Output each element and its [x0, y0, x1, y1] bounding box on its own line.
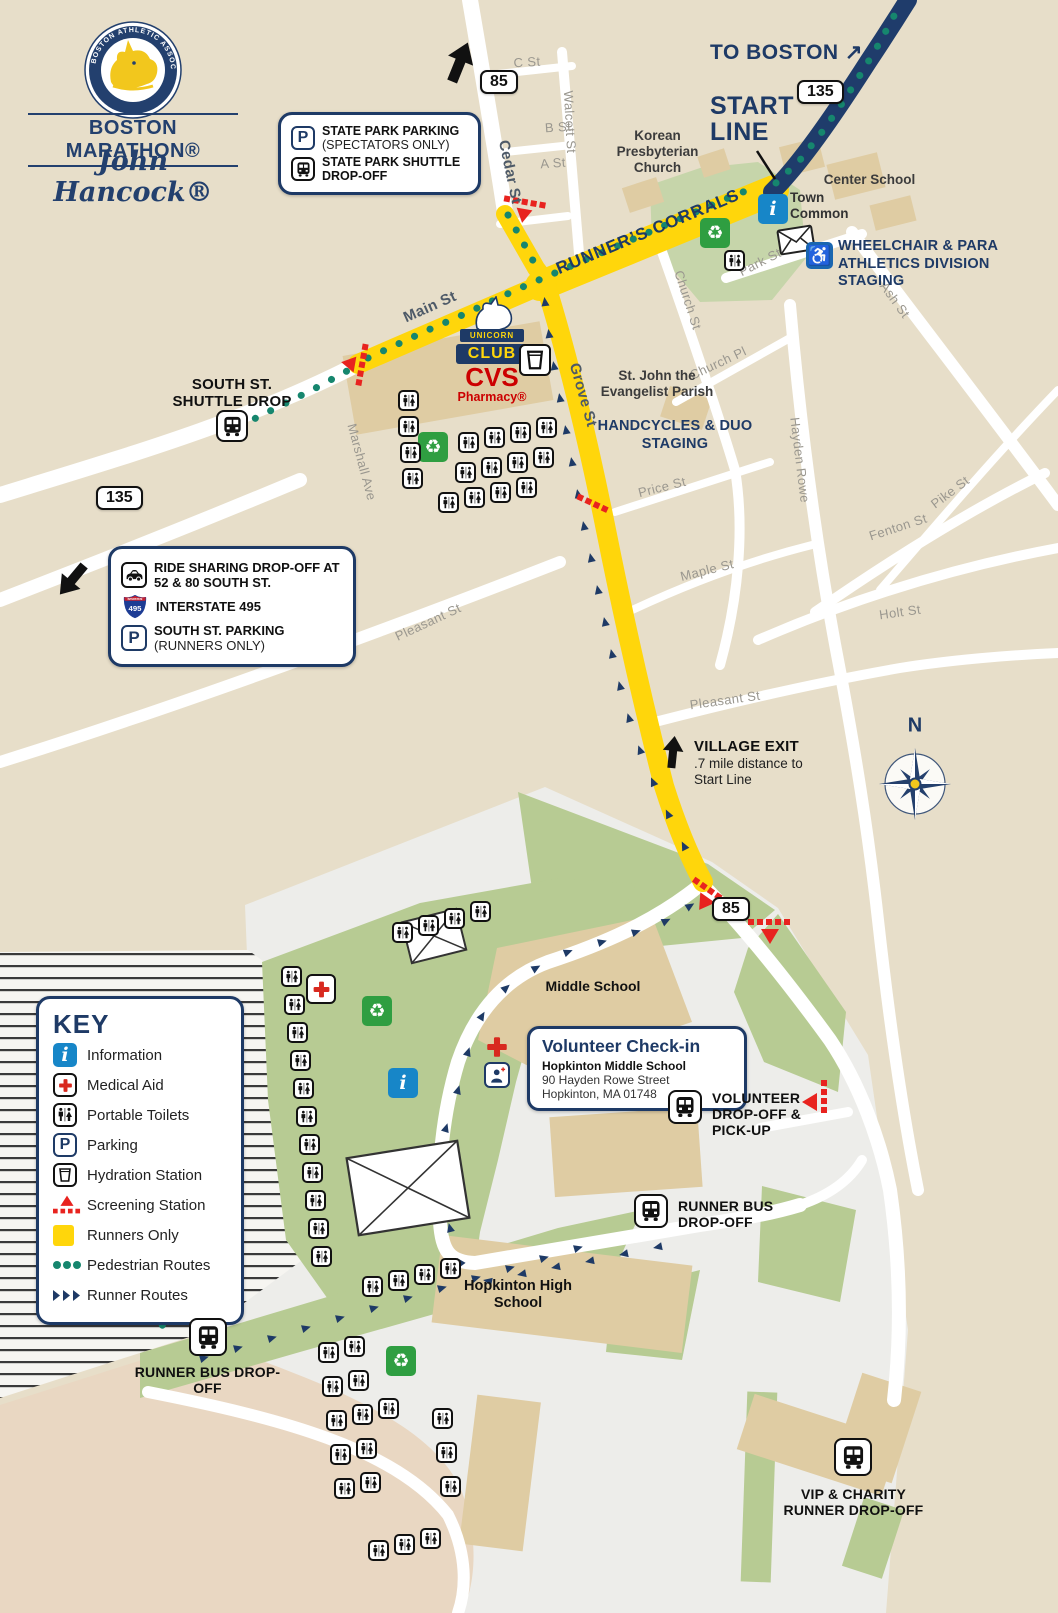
recycle-icon: ♻ — [386, 1346, 416, 1376]
volunteer-icon — [484, 1062, 510, 1088]
bus-icon — [668, 1090, 702, 1124]
key-title: KEY — [53, 1009, 227, 1040]
south-st-parking-label: SOUTH ST. PARKING — [154, 623, 285, 638]
portable-toilets-icon — [356, 1438, 377, 1459]
recycle-icon: ♻ — [700, 218, 730, 248]
portable-toilets-icon — [281, 966, 302, 987]
portable-toilets-icon — [308, 1218, 329, 1239]
key-item-information: Information — [87, 1047, 227, 1064]
interstate-495-shield: INTERSTATE 495 — [121, 593, 149, 620]
state-park-parking-label: STATE PARK PARKING — [322, 124, 459, 138]
hydration-icon — [519, 344, 551, 376]
portable-toilets-icon — [299, 1134, 320, 1155]
state-park-parking-sub: (SPECTATORS ONLY) — [322, 138, 459, 152]
portable-toilets-icon — [481, 457, 502, 478]
recycle-icon: ♻ — [418, 432, 448, 462]
key-item-medical: Medical Aid — [87, 1077, 227, 1094]
hopkinton-start-area-map: BOSTON ATHLETIC ASSOCIATION BOSTON MARAT… — [0, 0, 1058, 1613]
hydration-icon — [53, 1163, 77, 1187]
label-handcycles-staging: HANDCYCLES & DUO STAGING — [595, 418, 755, 453]
south-st-parking-sub: (RUNNERS ONLY) — [154, 638, 285, 653]
unicorn-club-top: UNICORN — [460, 329, 524, 342]
portable-toilets-icon — [438, 492, 459, 513]
portable-toilets-icon — [533, 447, 554, 468]
portable-toilets-icon — [284, 994, 305, 1015]
place-middle-school: Middle School — [538, 978, 648, 995]
portable-toilets-icon — [305, 1190, 326, 1211]
portable-toilets-icon — [290, 1050, 311, 1071]
portable-toilets-icon — [398, 416, 419, 437]
portable-toilets-icon — [398, 390, 419, 411]
ride-share-callout: RIDE SHARING DROP-OFF AT 52 & 80 SOUTH S… — [108, 546, 356, 667]
bus-icon — [634, 1194, 668, 1228]
portable-toilets-icon — [311, 1246, 332, 1267]
unicorn-head-icon — [469, 296, 515, 332]
portable-toilets-icon — [470, 901, 491, 922]
portable-toilets-icon — [318, 1342, 339, 1363]
place-high-school: Hopkinton High School — [438, 1278, 598, 1312]
route-85-shield-south: 85 — [712, 897, 750, 921]
label-to-boston: TO BOSTON ↗ — [710, 40, 863, 65]
portable-toilets-icon — [516, 477, 537, 498]
portable-toilets-icon — [414, 1264, 435, 1285]
label-wheelchair-staging: WHEELCHAIR & PARA ATHLETICS DIVISION STA… — [838, 238, 1048, 291]
runners-only-swatch — [53, 1225, 74, 1246]
info-icon: i — [758, 194, 788, 224]
portable-toilets-icon — [400, 442, 421, 463]
portable-toilets-icon — [322, 1376, 343, 1397]
portable-toilets-icon — [362, 1276, 383, 1297]
portable-toilets-icon — [432, 1408, 453, 1429]
portable-toilets-icon — [484, 427, 505, 448]
place-st-john: St. John the Evangelist Parish — [592, 368, 722, 400]
portable-toilets-icon — [53, 1103, 77, 1127]
portable-toilets-icon — [378, 1398, 399, 1419]
portable-toilets-icon — [296, 1106, 317, 1127]
portable-toilets-icon — [440, 1258, 461, 1279]
key-item-hydration: Hydration Station — [87, 1167, 227, 1184]
runner-route-icon — [53, 1290, 81, 1301]
portable-toilets-icon — [334, 1478, 355, 1499]
pedestrian-route-icon — [53, 1260, 81, 1270]
ride-share-label: RIDE SHARING DROP-OFF AT 52 & 80 SOUTH S… — [154, 560, 343, 590]
place-town-common: Town Common — [790, 190, 865, 222]
portable-toilets-icon — [344, 1336, 365, 1357]
portable-toilets-icon — [490, 482, 511, 503]
wheelchair-icon: ♿ — [806, 242, 833, 269]
key-item-runners-only: Runners Only — [87, 1227, 227, 1244]
bus-icon — [834, 1438, 872, 1476]
info-icon: i — [53, 1043, 77, 1067]
place-korean-church: Korean Presbyterian Church — [600, 128, 715, 176]
state-park-callout: P STATE PARK PARKING (SPECTATORS ONLY) S… — [278, 112, 481, 195]
state-park-shuttle-label: STATE PARK SHUTTLE DROP-OFF — [322, 155, 468, 183]
label-vip-charity-dropoff: VIP & CHARITY RUNNER DROP-OFF — [776, 1486, 931, 1518]
volunteer-checkin-title: Volunteer Check-in — [542, 1036, 732, 1057]
tent — [347, 1141, 470, 1236]
place-center-school: Center School — [822, 172, 917, 188]
parking-icon: P — [121, 625, 147, 651]
portable-toilets-icon — [287, 1022, 308, 1043]
portable-toilets-icon — [330, 1444, 351, 1465]
portable-toilets-icon — [360, 1472, 381, 1493]
interstate-495-label: INTERSTATE 495 — [156, 599, 261, 614]
compass-rose — [879, 748, 951, 820]
street-label-walcott: Walcott St — [561, 90, 579, 153]
label-south-st-shuttle: SOUTH ST. SHUTTLE DROP — [162, 376, 302, 411]
medical-aid-icon — [484, 1034, 510, 1060]
portable-toilets-icon — [510, 422, 531, 443]
compass-north-label: N — [908, 715, 922, 738]
portable-toilets-icon — [458, 432, 479, 453]
bus-icon — [216, 410, 248, 442]
unicorn-club-bottom: CLUB — [456, 344, 528, 364]
label-start-line: START LINE — [710, 94, 810, 145]
key-item-pedestrian: Pedestrian Routes — [87, 1257, 227, 1274]
route-135-shield-west: 135 — [96, 486, 143, 510]
portable-toilets-icon — [444, 908, 465, 929]
portable-toilets-icon — [455, 462, 476, 483]
portable-toilets-icon — [392, 922, 413, 943]
medical-aid-icon — [53, 1073, 77, 1097]
street-label-a-st: A St — [540, 155, 566, 172]
route-85-shield: 85 — [480, 70, 518, 94]
portable-toilets-icon — [348, 1370, 369, 1391]
medical-aid-icon — [306, 974, 336, 1004]
portable-toilets-icon — [436, 1442, 457, 1463]
i495-number: 495 — [129, 604, 143, 613]
key-item-toilets: Portable Toilets — [87, 1107, 227, 1124]
portable-toilets-icon — [536, 417, 557, 438]
info-icon: i — [388, 1068, 418, 1098]
car-icon — [121, 562, 147, 588]
bus-icon — [189, 1318, 227, 1356]
portable-toilets-icon — [352, 1404, 373, 1425]
portable-toilets-icon — [507, 452, 528, 473]
portable-toilets-icon — [402, 468, 423, 489]
john-hancock-signature: John Hancock® — [28, 146, 238, 208]
label-village-exit: VILLAGE EXIT — [694, 738, 799, 755]
key-item-runner-routes: Runner Routes — [87, 1287, 227, 1304]
baa-logo: BOSTON ATHLETIC ASSOCIATION — [83, 20, 183, 120]
street-label-c-st: C St — [513, 54, 541, 71]
volunteer-checkin-line2: 90 Hayden Rowe Street — [542, 1073, 732, 1087]
portable-toilets-icon — [293, 1078, 314, 1099]
key-item-screening: Screening Station — [87, 1197, 227, 1214]
volunteer-checkin-line1: Hopkinton Middle School — [542, 1059, 732, 1073]
key-item-parking: Parking — [87, 1137, 227, 1154]
recycle-icon: ♻ — [362, 996, 392, 1026]
portable-toilets-icon — [368, 1540, 389, 1561]
portable-toilets-icon — [302, 1162, 323, 1183]
portable-toilets-icon — [326, 1410, 347, 1431]
label-volunteer-dropoff: VOLUNTEER DROP-OFF & PICK-UP — [712, 1090, 822, 1138]
portable-toilets-icon — [464, 487, 485, 508]
portable-toilets-icon — [724, 250, 745, 271]
i495-top-text: INTERSTATE — [128, 598, 143, 601]
parking-icon: P — [291, 126, 315, 150]
key-legend: KEY iInformation Medical Aid Portable To… — [36, 996, 244, 1325]
portable-toilets-icon — [418, 915, 439, 936]
portable-toilets-icon — [420, 1528, 441, 1549]
parking-icon: P — [53, 1133, 77, 1157]
portable-toilets-icon — [388, 1270, 409, 1291]
label-runner-bus-dropoff: RUNNER BUS DROP-OFF — [678, 1198, 778, 1230]
label-runner-bus-dropoff-sw: RUNNER BUS DROP-OFF — [130, 1364, 285, 1396]
bus-icon — [291, 157, 315, 181]
volunteer-checkin-line3: Hopkinton, MA 01748 — [542, 1087, 732, 1101]
label-village-exit-distance: .7 mile distance to Start Line — [694, 756, 814, 788]
screening-station-icon — [53, 1194, 81, 1216]
portable-toilets-icon — [394, 1534, 415, 1555]
cvs-pharmacy: Pharmacy® — [436, 390, 548, 404]
portable-toilets-icon — [440, 1476, 461, 1497]
